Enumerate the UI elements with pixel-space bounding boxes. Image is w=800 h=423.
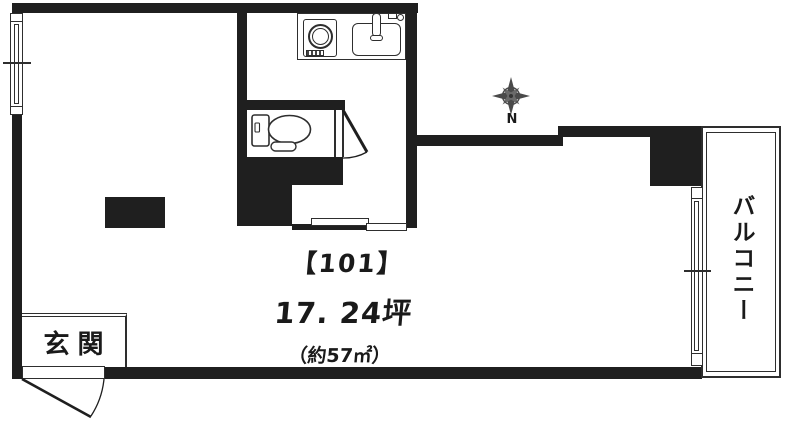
unit-number: 【101】 [246, 244, 449, 280]
compass-north-label: N [499, 112, 525, 127]
compass-rose-icon [492, 77, 530, 115]
toilet-icon [252, 115, 311, 151]
toilet-door-swing-icon [343, 110, 367, 158]
area-tsubo: 17. 24坪 [242, 290, 446, 332]
unit-info: 【101】 17. 24坪 （約57㎡） [239, 244, 450, 368]
entrance-door-swing-icon [22, 379, 104, 417]
area-sqm: （約57㎡） [239, 341, 441, 368]
floor-plan: バルコニー 玄関 [0, 0, 800, 423]
